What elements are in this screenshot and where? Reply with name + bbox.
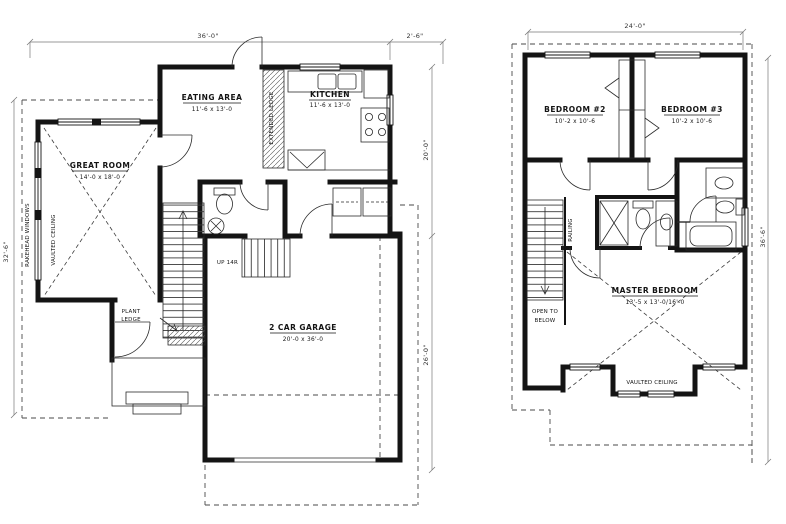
dim-second-right: 36'-6" (759, 226, 767, 247)
master-ceiling-note: VAULTED CEILING (626, 380, 677, 386)
open-to-below-note-1: OPEN TO (532, 309, 559, 315)
great-room-vault-lines (44, 128, 156, 296)
dim-first-top: 36'-0" (197, 32, 218, 40)
bedroom3-size: 10'-2 x 10'-6 (672, 119, 713, 125)
eating-area-size: 11'-6 x 13'-0 (192, 107, 233, 113)
extended-ledge-note: EXTENDED LEDGE (269, 91, 275, 144)
second-floor-windows (545, 52, 748, 397)
second-floor-plan: 24'-0" 36'-6" (512, 22, 771, 465)
railing-note: RAILING (568, 218, 574, 241)
great-room-size: 14'-0 x 18'-0 (80, 175, 121, 181)
second-floor-fixtures (600, 168, 744, 250)
plant-ledge-note-2: LEDGE (121, 317, 141, 323)
dim-first-right-upper: 20'-0" (422, 139, 430, 160)
bedroom3-label: BEDROOM #3 (661, 105, 723, 114)
dim-first-top-right: 2'-6" (407, 32, 424, 40)
stairs-up-note: UP 14R (217, 260, 238, 266)
dim-second-top: 24'-0" (624, 22, 645, 30)
first-floor-plan: 36'-0" 2'-6" 32'-6" 20'-0" 26'-0" (2, 32, 446, 505)
bedroom2-label: BEDROOM #2 (544, 105, 606, 114)
great-room-label: GREAT ROOM (70, 161, 131, 170)
kitchen-size: 11'-6 x 13'-0 (310, 103, 351, 109)
bedroom2-size: 10'-2 x 10'-6 (555, 119, 596, 125)
eating-area-label: EATING AREA (182, 93, 243, 102)
plant-ledge-note-1: PLANT (122, 309, 141, 315)
great-room-ceiling-note: VAULTED CEILING (51, 214, 57, 265)
kitchen-label: KITCHEN (310, 90, 350, 99)
dim-first-right-lower: 26'-0" (422, 344, 430, 365)
floor-plan-drawing: 36'-0" 2'-6" 32'-6" 20'-0" 26'-0" (0, 0, 786, 524)
rakehead-windows-note: RAKEHEAD WINDOWS (25, 203, 31, 267)
dim-first-left: 32'-6" (2, 241, 10, 262)
master-bedroom-size: 13'-5 x 13'-0/16'-0 (625, 300, 684, 306)
garage-size: 20'-0 x 36'-0 (283, 337, 324, 343)
plant-ledge-shelf (168, 326, 205, 345)
second-floor-stairs (527, 197, 565, 325)
first-floor-stairs (163, 203, 290, 338)
second-floor-doors (560, 160, 716, 278)
garage-entry-steps (242, 239, 290, 277)
garage-label: 2 CAR GARAGE (269, 323, 337, 332)
first-floor-dimensions (11, 39, 446, 473)
floor-plan-sheet: 36'-0" 2'-6" 32'-6" 20'-0" 26'-0" (0, 0, 786, 524)
open-to-below-note-2: BELOW (535, 318, 556, 324)
master-bedroom-label: MASTER BEDROOM (612, 286, 699, 295)
